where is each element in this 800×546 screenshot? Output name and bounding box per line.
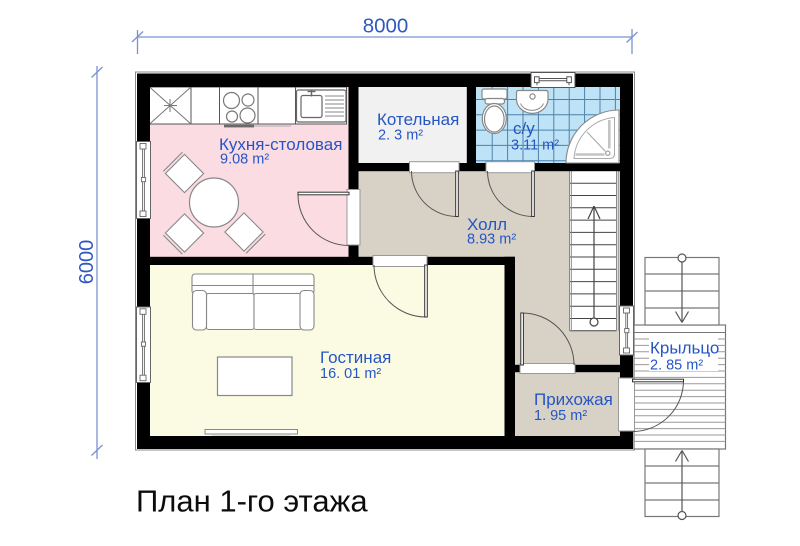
svg-text:6000: 6000	[76, 240, 98, 285]
svg-text:Крыльцо: Крыльцо	[650, 339, 719, 358]
svg-text:Гостиная: Гостиная	[320, 348, 391, 367]
svg-text:с/у: с/у	[513, 119, 535, 138]
svg-text:План 1-го этажа: План 1-го этажа	[136, 484, 368, 519]
svg-text:8000: 8000	[363, 15, 409, 38]
svg-text:9.08 m²: 9.08 m²	[220, 152, 269, 168]
svg-text:8.93 m²: 8.93 m²	[467, 232, 516, 248]
svg-text:2. 85 m²: 2. 85 m²	[650, 358, 703, 374]
svg-text:2. 3 m²: 2. 3 m²	[378, 128, 423, 144]
svg-text:1. 95 m²: 1. 95 m²	[534, 408, 587, 424]
svg-text:Котельная: Котельная	[377, 110, 459, 129]
svg-text:16. 01 m²: 16. 01 m²	[320, 366, 381, 382]
svg-text:Прихожая: Прихожая	[534, 390, 613, 409]
svg-text:3.11 m²: 3.11 m²	[511, 138, 559, 154]
